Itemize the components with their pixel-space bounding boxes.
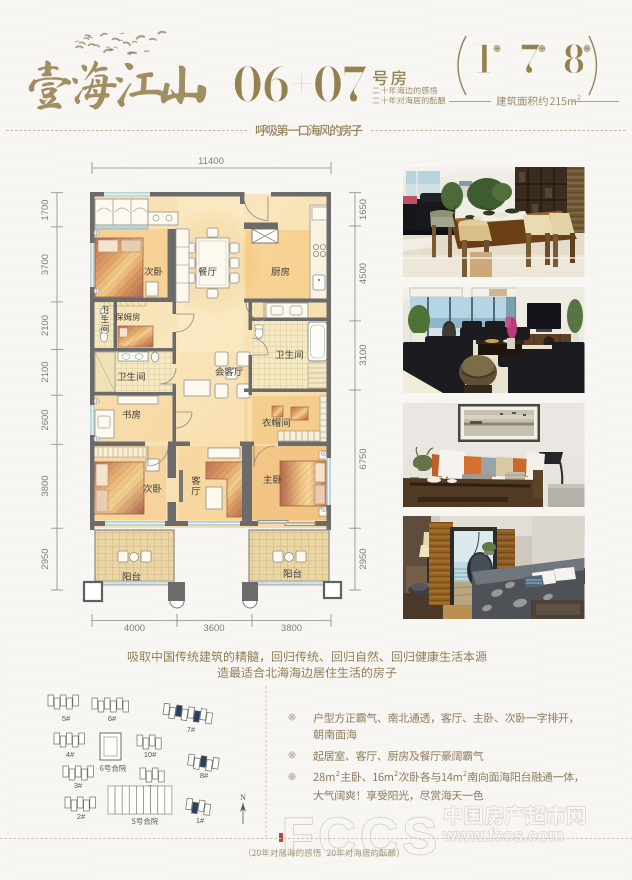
svg-text:2600: 2600 [40, 409, 51, 430]
svg-text:11400: 11400 [198, 156, 224, 167]
svg-text:2#: 2# [77, 812, 86, 821]
svg-text:2100: 2100 [40, 315, 51, 336]
svg-text:7#: 7# [187, 725, 196, 734]
svg-text:N: N [240, 793, 246, 802]
svg-text:6750: 6750 [358, 448, 369, 469]
svg-text:3700: 3700 [40, 254, 51, 275]
svg-text:www.fccs.com: www.fccs.com [442, 825, 564, 845]
svg-text:1650: 1650 [358, 199, 369, 220]
svg-text:3#: 3# [74, 781, 83, 790]
svg-text:1#: 1# [196, 816, 205, 825]
svg-text:8#: 8# [200, 771, 209, 780]
svg-text:3800: 3800 [281, 623, 302, 634]
svg-text:10#: 10# [144, 750, 157, 759]
svg-text:2950: 2950 [40, 548, 51, 569]
svg-text:FCCS: FCCS [282, 808, 442, 866]
svg-text:2950: 2950 [358, 548, 369, 569]
svg-text:4500: 4500 [358, 263, 369, 284]
svg-text:3600: 3600 [203, 623, 224, 634]
svg-text:5#: 5# [62, 714, 71, 723]
svg-text:2100: 2100 [40, 361, 51, 382]
svg-text:4000: 4000 [124, 623, 145, 634]
svg-text:3100: 3100 [358, 344, 369, 365]
svg-text:4#: 4# [66, 750, 75, 759]
svg-text:3800: 3800 [40, 475, 51, 496]
svg-text:6#: 6# [108, 714, 117, 723]
svg-text:1700: 1700 [40, 199, 51, 220]
